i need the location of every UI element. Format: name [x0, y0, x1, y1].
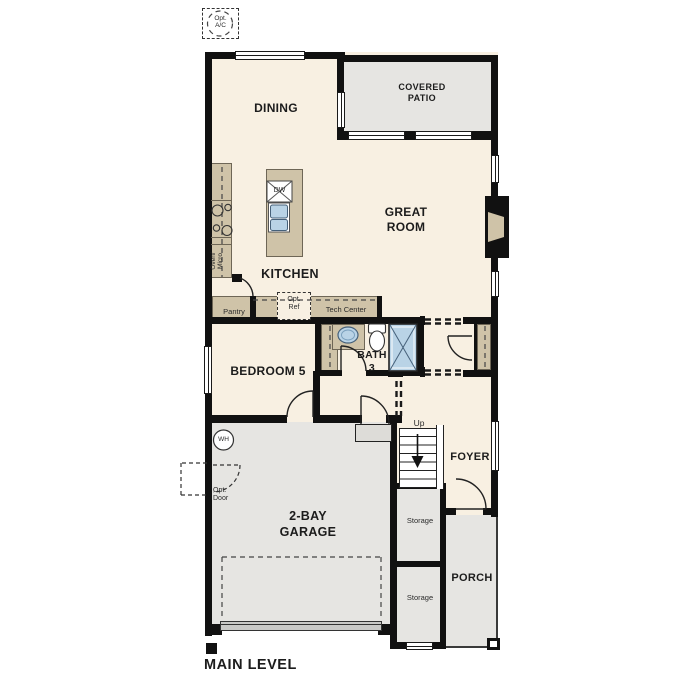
fireplace-insert	[488, 212, 504, 242]
shower-icon	[389, 324, 417, 371]
oven-micro-label: Oven/ Micro	[210, 244, 232, 278]
water-heater-label: WH	[213, 436, 234, 443]
stairs-up-label: Up	[408, 419, 430, 429]
storage-rear-label: Storage	[400, 594, 440, 603]
door-arc-front-door	[456, 479, 486, 509]
door-arc-garage-entry	[361, 396, 389, 424]
room-label-kitchen: KITCHEN	[246, 267, 334, 283]
room-label-great-room: GREAT ROOM	[364, 205, 448, 235]
room-label-porch: PORCH	[448, 572, 496, 586]
plan-title: MAIN LEVEL	[204, 656, 364, 674]
door-arc-entry-closet	[448, 336, 472, 360]
room-label-bath3: BATH 3	[353, 349, 391, 374]
opt-door-label: Opt. Door	[209, 487, 245, 503]
door-arc-bedroom5	[287, 391, 313, 417]
opt-ac-label: Opt. A/C	[202, 15, 239, 30]
dishwasher-label: DW	[267, 187, 292, 195]
opt-ref-label: Opt. Ref	[277, 296, 311, 312]
island-sink-icon	[269, 203, 290, 232]
floor-plan: Opt. A/C DINING COVERED PATIO GREAT ROOM…	[0, 0, 687, 687]
bath-sink-icon	[338, 327, 358, 343]
toilet-icon	[369, 324, 386, 351]
room-label-dining: DINING	[231, 101, 321, 116]
room-label-covered-patio: COVERED PATIO	[380, 82, 464, 105]
tech-center-label: Tech Center	[315, 306, 377, 315]
stairs-direction-arrow	[412, 434, 424, 468]
storage-under-stairs-label: Storage	[400, 517, 440, 526]
room-label-garage: 2-BAY GARAGE	[268, 509, 348, 540]
room-label-bedroom5: BEDROOM 5	[212, 364, 324, 379]
room-label-foyer: FOYER	[446, 451, 494, 465]
cooktop-icon	[212, 204, 232, 235]
plan-linework	[0, 0, 687, 687]
pantry-label: Pantry	[213, 308, 255, 317]
